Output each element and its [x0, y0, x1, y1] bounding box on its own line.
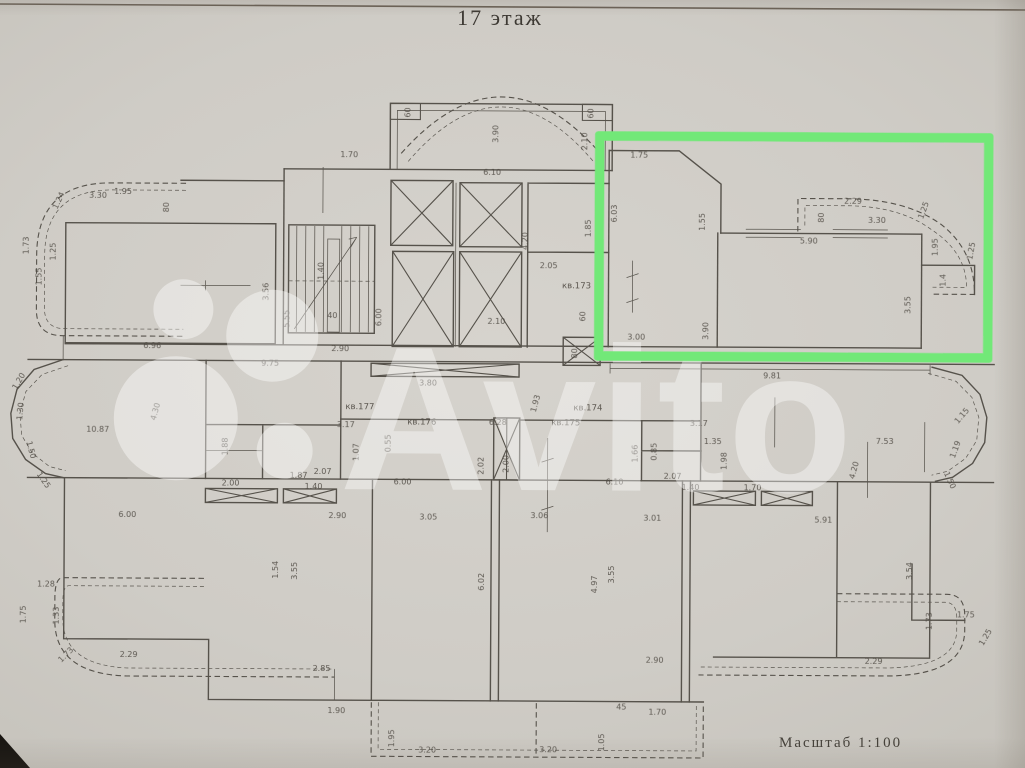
dimension-label: 1.15 [953, 406, 971, 425]
dimension-label: 4.20 [521, 232, 530, 250]
dimension-label: 6.00 [394, 477, 412, 486]
apartment-labels-layer: кв.173кв.177кв.176кв.175кв.174 [345, 280, 603, 428]
floor-title: 17 этаж [0, 5, 1000, 31]
dimension-label: 2.85 [313, 664, 331, 673]
dimension-label: 2.05 [540, 261, 558, 270]
dimension-label: 2.90 [646, 656, 664, 665]
dimension-label: 6.00 [374, 308, 383, 326]
dimension-label: 2.00 [502, 455, 511, 473]
dimension-label: 1.73 [925, 612, 934, 630]
dimension-label: 1.25 [35, 470, 53, 490]
dimension-label: 1.40 [305, 482, 323, 491]
dimension-label: 1.95 [114, 187, 132, 196]
dimension-label: 3.05 [419, 513, 437, 522]
dimension-label: 3.90 [491, 125, 500, 143]
dimension-label: 3.80 [419, 379, 437, 388]
apartment-number-label: кв.177 [345, 402, 374, 412]
dimension-label: 2.07 [314, 467, 332, 476]
dimension-label: 3.06 [530, 511, 548, 520]
dimension-label: 80 [817, 212, 826, 222]
dimension-label: 1.25 [965, 241, 977, 260]
dimension-label: 3.90 [701, 322, 710, 340]
dimension-label: 2.29 [120, 650, 138, 659]
dimension-label: 3.30 [89, 191, 107, 200]
dimension-label: 1.28 [37, 580, 55, 589]
dimension-label: 1.70 [744, 483, 762, 492]
dimension-label: 6.00 [118, 510, 136, 519]
dimension-label: 1.75 [630, 151, 648, 160]
dimension-label: 1.25 [49, 243, 58, 261]
apartment-number-label: кв.176 [407, 417, 436, 427]
dimension-label: 1.40 [317, 262, 326, 280]
dimension-label: 2.10 [580, 132, 589, 150]
dimension-label: 1.73 [22, 237, 31, 255]
dimension-label: 1.50 [24, 440, 37, 460]
dimension-label: 1.95 [387, 729, 396, 747]
dimension-label: 5.55 [282, 310, 291, 328]
dimension-label: 6.10 [606, 477, 624, 486]
dimension-label: 1.87 [290, 471, 308, 480]
dimension-label: 1.95 [931, 238, 940, 256]
dimension-label: 3.20 [418, 746, 436, 755]
dimension-label: 60 [586, 108, 595, 118]
dimension-label: 3.20 [539, 745, 557, 754]
dimension-label: 60 [403, 107, 412, 117]
dimension-label: 6.10 [483, 168, 501, 177]
plan-area: 1.70603.90602.106.101.756.031.551.853.00… [0, 0, 1025, 768]
dimension-label: 4.97 [590, 576, 599, 594]
dimension-label: 6.02 [477, 573, 486, 591]
dimension-label: 1.05 [597, 734, 606, 752]
dimension-label: 2.07 [664, 472, 682, 481]
dimension-label: 7.53 [876, 437, 894, 446]
dimension-label: 1.24 [51, 191, 67, 211]
dimension-label: 0.85 [650, 443, 659, 461]
dimension-label: 40 [327, 311, 337, 320]
dimension-label: 1.75 [957, 610, 975, 619]
dimension-label: 2.10 [487, 317, 505, 326]
photo-corner-shadow [0, 734, 30, 768]
dimension-label: 3.55 [903, 296, 912, 314]
floor-plan-drawing: 1.70603.90602.106.101.756.031.551.853.00… [0, 0, 1025, 768]
dimension-label: 1.25 [977, 627, 994, 647]
dimension-label: 1.93 [529, 394, 542, 414]
dimension-label: 60 [578, 311, 587, 321]
dimension-label: 9.81 [763, 371, 781, 380]
dimension-label: 5.90 [800, 237, 818, 246]
dimension-label: 2.29 [865, 657, 883, 666]
dimension-label: 3.01 [643, 514, 661, 523]
dimension-label: 3.56 [261, 283, 270, 301]
dimension-label: 1.73 [56, 645, 75, 664]
dimension-label: 3.30 [868, 216, 886, 225]
dimension-label: 80 [570, 348, 579, 358]
dimension-label: 2.90 [328, 511, 346, 520]
dimension-label: 1.90 [327, 706, 345, 715]
dimension-label: 1.70 [340, 150, 358, 159]
dimension-label: 2.02 [477, 457, 486, 475]
dimension-label: 1.33 [52, 607, 61, 625]
scale-label: Масштаб 1:100 [779, 735, 902, 752]
dimension-label: 1.35 [704, 437, 722, 446]
dimension-label: 6.28 [489, 418, 507, 427]
dimension-label: 1.55 [35, 268, 44, 286]
dimension-label: 10.87 [86, 425, 109, 434]
dimension-label: 80 [162, 202, 171, 212]
dimension-label: 1.98 [720, 452, 729, 470]
dimension-label: 1.88 [221, 438, 230, 456]
dimension-label: 2.90 [331, 344, 349, 353]
dimension-label: 1.55 [698, 213, 707, 231]
dimension-label: 4.20 [847, 460, 860, 480]
dimension-label: 1.70 [648, 708, 666, 717]
dimension-label: 3.55 [290, 562, 299, 580]
dimension-label: 45 [616, 703, 626, 712]
dimension-label: 4.30 [149, 402, 162, 422]
dimension-label: 3.55 [607, 566, 616, 584]
dimension-label: 3.17 [337, 420, 355, 429]
dimension-label: 6.03 [610, 205, 619, 223]
dimension-label: 1.85 [584, 219, 593, 237]
dimension-label: 1.19 [948, 440, 963, 460]
apartment-number-label: кв.174 [573, 403, 602, 413]
dimension-label: 0.55 [384, 434, 393, 452]
blueprint-sheet: 1.70603.90602.106.101.756.031.551.853.00… [0, 0, 1025, 768]
dimension-label: 2.29 [844, 197, 862, 206]
dimension-label: 1.75 [19, 606, 28, 624]
dimension-label: 1.30 [15, 402, 26, 421]
dimension-label: 1.54 [271, 561, 280, 579]
dimension-label: 6.96 [143, 341, 161, 350]
apartment-number-label: кв.173 [562, 281, 591, 291]
apartment-number-label: кв.175 [551, 418, 580, 428]
dimension-label: 3.17 [690, 419, 708, 428]
dimension-label: 9.75 [261, 359, 279, 368]
dimension-label: 1.66 [631, 445, 640, 463]
dimension-label: 5.91 [814, 516, 832, 525]
dimension-label: 1.50 [942, 470, 958, 490]
dimension-label: 1.07 [352, 443, 361, 461]
dimension-label: 3.54 [905, 562, 914, 580]
dimension-label: 2.00 [222, 478, 240, 487]
dimension-label: 1.40 [682, 483, 700, 492]
dimension-label: 1.4 [939, 274, 948, 287]
dimension-label: 3.00 [627, 333, 645, 342]
